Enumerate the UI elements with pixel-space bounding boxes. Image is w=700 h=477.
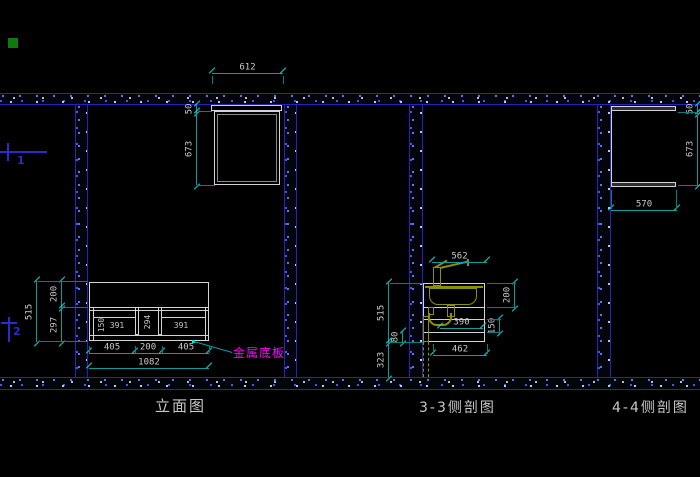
- dim-text-bay-right: 391: [174, 322, 188, 330]
- extension-line: [198, 185, 215, 186]
- dim-text-bay-left: 391: [110, 322, 124, 330]
- dim-below-height: 323: [388, 342, 389, 377]
- dim-text: 80: [392, 332, 401, 343]
- dim-total-width: 1082: [89, 368, 209, 369]
- faucet-body: [433, 267, 441, 286]
- dim-text: 200: [51, 286, 60, 302]
- wall-left: [75, 105, 88, 377]
- section-marker-2-number: 2: [13, 326, 21, 337]
- dim-bottom-width: 462: [433, 355, 487, 356]
- dim-upper-height: 673: [196, 112, 197, 185]
- extension-line: [487, 283, 516, 284]
- extension-line: [135, 346, 136, 353]
- extension-line: [676, 190, 677, 209]
- dim-base-height: 80: [402, 332, 403, 342]
- section33-view-title: 3-3侧剖图: [419, 397, 496, 417]
- upper-cabinet-box: [214, 111, 280, 185]
- waste-pipe: [423, 316, 429, 342]
- extension-line: [89, 346, 90, 353]
- dim-text: 570: [636, 201, 652, 210]
- extension-line: [678, 112, 698, 113]
- dim-text-middle-height: 294: [144, 315, 152, 329]
- dim-text: 515: [26, 303, 35, 319]
- section44-bottom-panel: [611, 182, 676, 187]
- extension-line: [162, 346, 163, 353]
- dim-drawer-height: 150: [499, 319, 500, 332]
- extension-line: [212, 76, 213, 84]
- dim-left-total: 515: [36, 281, 37, 342]
- dim-text: 515: [378, 304, 387, 320]
- dim-cabinet-height: 515: [388, 283, 389, 342]
- dim-text: 405: [104, 344, 120, 353]
- dim-drawer-width: 390: [440, 328, 483, 329]
- extension-line: [63, 307, 88, 308]
- dim-text: 673: [186, 140, 195, 156]
- extension-line: [38, 281, 88, 282]
- waste-pipe-hidden: [423, 342, 429, 377]
- section-marker-2-tick: [8, 317, 10, 342]
- extension-line: [390, 283, 423, 284]
- dim-bottom-columns: 405 200 405: [89, 353, 209, 354]
- cabinet-side-line: [205, 307, 206, 341]
- dim-text: 297: [51, 316, 60, 332]
- dim-text: 612: [239, 64, 255, 73]
- dim-text: 323: [378, 351, 387, 367]
- extension-line: [209, 346, 210, 353]
- dim-upper-width: 612: [212, 73, 283, 74]
- dim-text: 390: [453, 319, 469, 328]
- extension-line: [433, 344, 434, 354]
- wall-middle-2: [409, 105, 423, 377]
- dim-counter-width: 562: [432, 262, 487, 263]
- dim-text-shelf-height: 150: [98, 318, 106, 332]
- section44-wall-face-line: [611, 106, 612, 187]
- section44-view-title: 4-4侧剖图: [612, 397, 689, 417]
- dim-text: 1082: [138, 359, 160, 368]
- section-marker-1-number: 1: [17, 155, 25, 166]
- dim-44-height: 673: [697, 113, 698, 185]
- cabinet-base-line: [90, 335, 208, 336]
- section44-top-panel: [611, 106, 676, 111]
- dim-text: 562: [451, 253, 467, 262]
- dim-text: 200: [504, 287, 513, 303]
- extension-line: [283, 76, 284, 84]
- dim-left-lower: 297: [61, 307, 62, 342]
- cad-drawing-canvas: 612 50 673 150 391 294 391 200 297 515 4…: [0, 0, 700, 477]
- wall-middle-1: [284, 105, 297, 377]
- cabinet-side-line: [93, 307, 94, 341]
- section-marker-2-line: [1, 322, 17, 324]
- cabinet-divider-line: [89, 307, 209, 308]
- upper-cabinet-inner-line: [217, 114, 277, 182]
- extension-line: [198, 111, 212, 112]
- cabinet-post: [158, 307, 162, 335]
- wall-bottom-band: [0, 377, 700, 390]
- trap-riser: [428, 307, 434, 315]
- dim-text: 673: [687, 141, 696, 157]
- base-cabinet-box: [89, 282, 209, 341]
- section-marker-1-tick: [7, 143, 9, 161]
- wall-right: [597, 105, 611, 377]
- extension-line: [487, 344, 488, 354]
- dim-text: 405: [178, 344, 194, 353]
- dim-text: 462: [452, 346, 468, 355]
- extension-line: [611, 190, 612, 209]
- extension-line: [38, 341, 88, 342]
- extension-line: [678, 185, 698, 186]
- dim-44-depth: 570: [611, 210, 677, 211]
- wall-top-band: [0, 93, 700, 105]
- dim-text: 200: [140, 344, 156, 353]
- cabinet-post: [135, 307, 139, 335]
- dim-sink-height: 200: [514, 283, 515, 307]
- leader-line: [194, 341, 233, 353]
- extension-line: [390, 342, 423, 343]
- metal-base-annotation: 金属底板: [233, 344, 285, 361]
- extension-line: [487, 319, 501, 320]
- extension-line: [487, 332, 501, 333]
- elevation-view-title: 立面图: [155, 395, 206, 416]
- green-marker-square: [8, 38, 18, 48]
- shelf-line-right: [162, 317, 205, 318]
- extension-line: [487, 307, 516, 308]
- cabinet-divider-line: [89, 310, 209, 311]
- section33-line: [423, 332, 485, 333]
- sink-bowl: [429, 288, 477, 305]
